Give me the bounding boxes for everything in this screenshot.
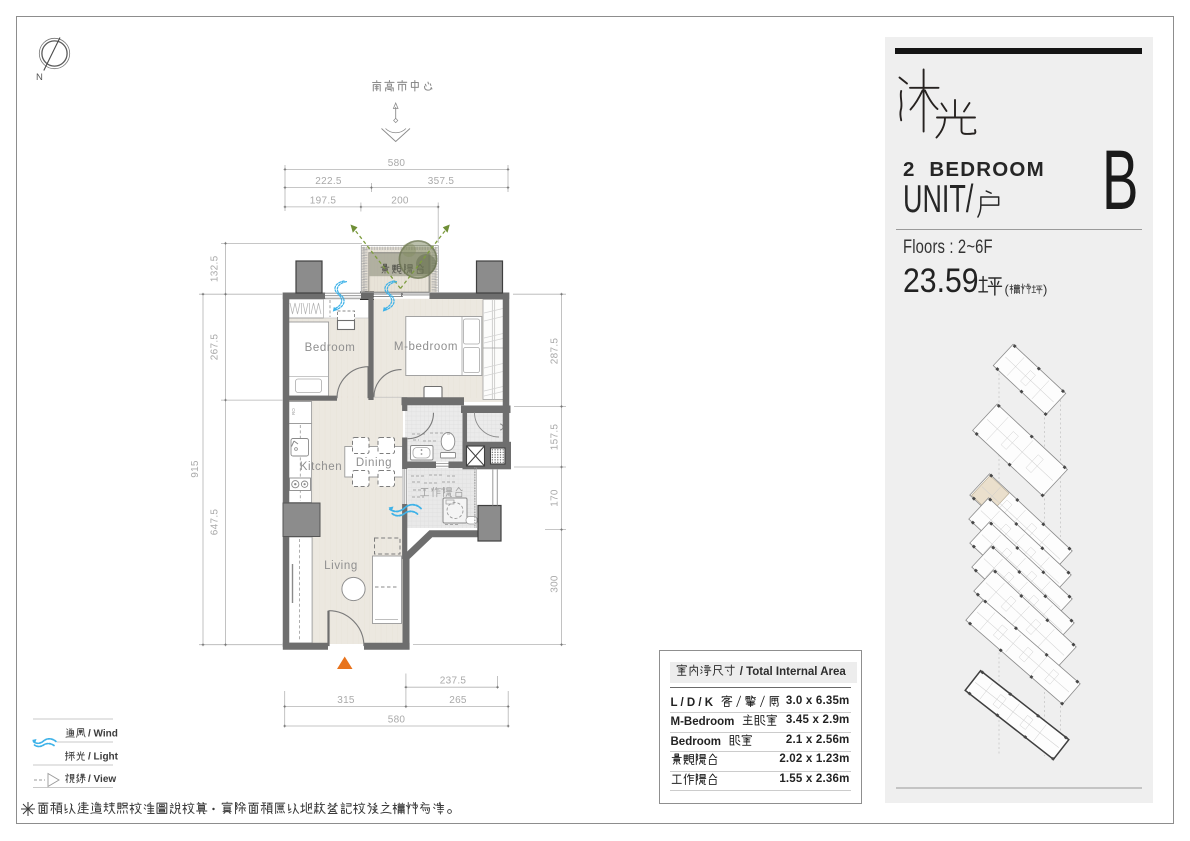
svg-text:157.5: 157.5: [550, 424, 561, 451]
svg-text:267.5: 267.5: [210, 334, 221, 361]
svg-text:N: N: [36, 72, 43, 83]
svg-text:/ View: / View: [88, 774, 116, 785]
svg-text:300: 300: [550, 575, 561, 593]
svg-text:647.5: 647.5: [210, 509, 221, 536]
svg-text:222.5: 222.5: [315, 176, 342, 187]
svg-text:M-bedroom: M-bedroom: [394, 341, 458, 353]
svg-text:357.5: 357.5: [428, 176, 455, 187]
svg-text:580: 580: [388, 714, 406, 725]
svg-text:315: 315: [337, 695, 355, 706]
svg-text:Living: Living: [324, 560, 358, 572]
svg-text:RO: RO: [291, 408, 296, 415]
svg-text:Bedroom: Bedroom: [305, 342, 356, 354]
svg-text:265: 265: [449, 695, 467, 706]
svg-text:237.5: 237.5: [440, 676, 467, 687]
svg-text:580: 580: [388, 158, 406, 169]
svg-text:Kitchen: Kitchen: [300, 461, 343, 473]
svg-text:197.5: 197.5: [310, 195, 337, 206]
svg-text:/ Wind: / Wind: [88, 729, 118, 740]
svg-text:915: 915: [190, 460, 201, 478]
svg-text:(: (: [1005, 282, 1010, 297]
svg-text:287.5: 287.5: [550, 338, 561, 365]
svg-text:/ Light: / Light: [88, 752, 119, 763]
svg-text:170: 170: [550, 489, 561, 507]
svg-text:): ): [1043, 282, 1047, 297]
svg-text:Dining: Dining: [356, 457, 392, 469]
svg-text:200: 200: [391, 195, 409, 206]
svg-text:132.5: 132.5: [210, 255, 221, 282]
